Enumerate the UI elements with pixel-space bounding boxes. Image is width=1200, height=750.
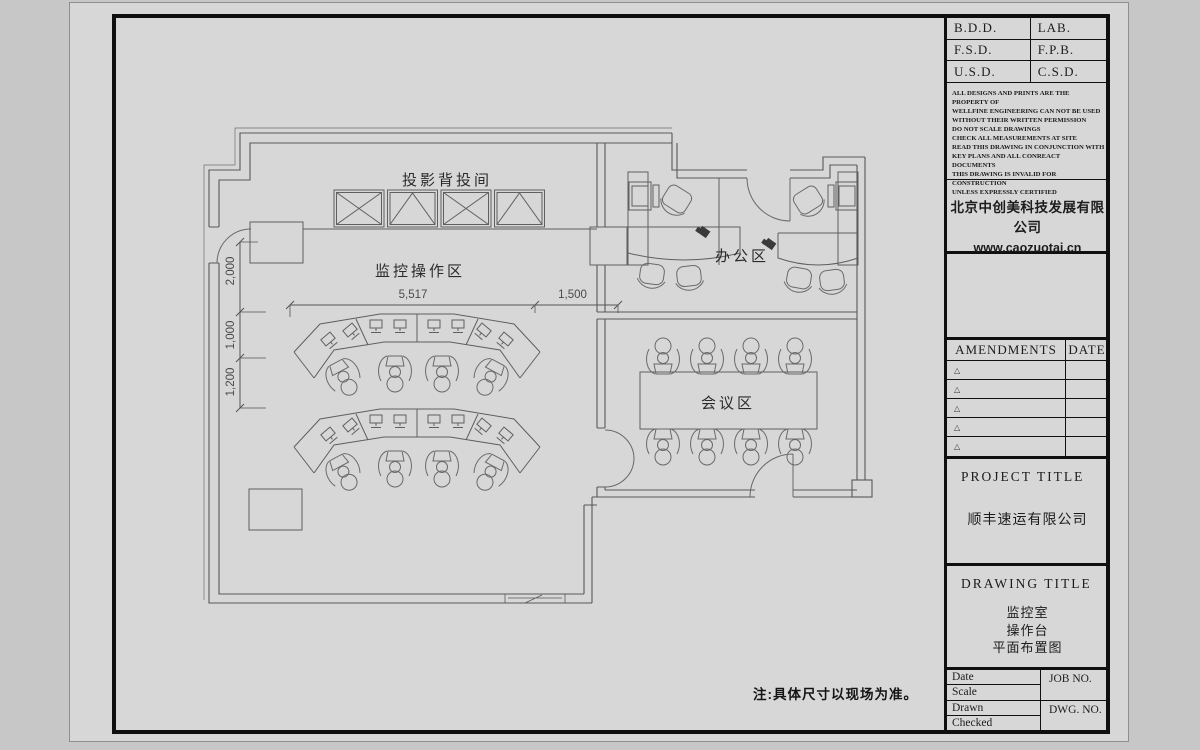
drawing-title-line2: 操作台 — [947, 622, 1108, 640]
console-row-1 — [294, 314, 540, 402]
stamp-usd: U.S.D. — [947, 61, 1031, 83]
dimension-1000: 1,000 — [225, 315, 237, 355]
stamp-grid: B.D.D. LAB. F.S.D. F.P.B. U.S.D. C.S.D. — [947, 18, 1108, 83]
amendment-date-cell — [1066, 399, 1108, 418]
console-row-2 — [294, 409, 540, 497]
amendment-date-cell — [1066, 380, 1108, 399]
columns — [249, 222, 303, 530]
amendment-date-cell — [1066, 437, 1108, 456]
project-title-section: PROJECT TITLE 顺丰速运有限公司 — [947, 459, 1108, 563]
blank-section — [947, 254, 1108, 337]
stamp-fsd: F.S.D. — [947, 40, 1031, 62]
label-meeting-area: 会议区 — [678, 392, 778, 413]
title-block: B.D.D. LAB. F.S.D. F.P.B. U.S.D. C.S.D. … — [944, 18, 1108, 730]
stamp-lab: LAB. — [1031, 18, 1108, 40]
amendments-header: AMENDMENTS — [947, 340, 1066, 361]
field-checked-label: Checked — [947, 716, 1040, 731]
dimension-2000: 2,000 — [225, 251, 237, 291]
drawing-title-section: DRAWING TITLE 监控室 操作台 平面布置图 — [947, 563, 1108, 667]
company-name: 北京中创美科技发展有限公司 — [947, 196, 1108, 236]
disclaimer-text: ALL DESIGNS AND PRINTS ARE THE PROPERTY … — [947, 83, 1108, 179]
dimension-5517: 5,517 — [383, 289, 443, 301]
project-name: 顺丰速运有限公司 — [947, 509, 1108, 529]
field-scale-label: Scale — [947, 685, 1040, 700]
amendment-row: △ — [947, 380, 1066, 399]
fields-table: Date Scale Drawn Checked JOB NO. DWG. NO… — [947, 667, 1108, 731]
field-drawn-label: Drawn — [947, 701, 1040, 716]
dimension-1200: 1,200 — [225, 362, 237, 402]
label-office-area: 办公区 — [692, 245, 792, 266]
amendment-date-cell — [1066, 418, 1108, 437]
revision-triangle-icon: △ — [954, 442, 960, 451]
field-date-label: Date — [947, 670, 1040, 685]
drawing-title-label: DRAWING TITLE — [947, 566, 1108, 592]
amendment-row: △ — [947, 399, 1066, 418]
company-website: www.caozuotai.cn — [947, 241, 1108, 255]
field-job-no-label: JOB NO. — [1041, 670, 1108, 701]
amendment-row: △ — [947, 361, 1066, 380]
field-dwg-no-label: DWG. NO. — [1041, 701, 1108, 732]
site-note: 注:具体尺寸以现场为准。 — [753, 683, 918, 703]
stamp-fpb: F.P.B. — [1031, 40, 1108, 62]
label-projection-room: 投影背投间 — [377, 169, 517, 190]
office-furniture — [590, 172, 858, 296]
amendment-date-cell — [1066, 361, 1108, 380]
revision-triangle-icon: △ — [954, 404, 960, 413]
label-monitor-operation-area: 监控操作区 — [350, 260, 490, 281]
projection-cabinets — [303, 190, 597, 229]
drawing-title-line1: 监控室 — [947, 604, 1108, 622]
stamp-csd: C.S.D. — [1031, 61, 1108, 83]
revision-triangle-icon: △ — [954, 423, 960, 432]
project-title-label: PROJECT TITLE — [947, 459, 1108, 485]
amendments-table: AMENDMENTS DATE △ △ △ △ △ — [947, 337, 1108, 459]
amendment-row: △ — [947, 437, 1066, 456]
revision-triangle-icon: △ — [954, 385, 960, 394]
dimension-1500: 1,500 — [545, 289, 600, 301]
drawing-title-line3: 平面布置图 — [947, 639, 1108, 657]
amendments-date-header: DATE — [1066, 340, 1108, 361]
stamp-bdd: B.D.D. — [947, 18, 1031, 40]
revision-triangle-icon: △ — [954, 366, 960, 375]
amendment-row: △ — [947, 418, 1066, 437]
